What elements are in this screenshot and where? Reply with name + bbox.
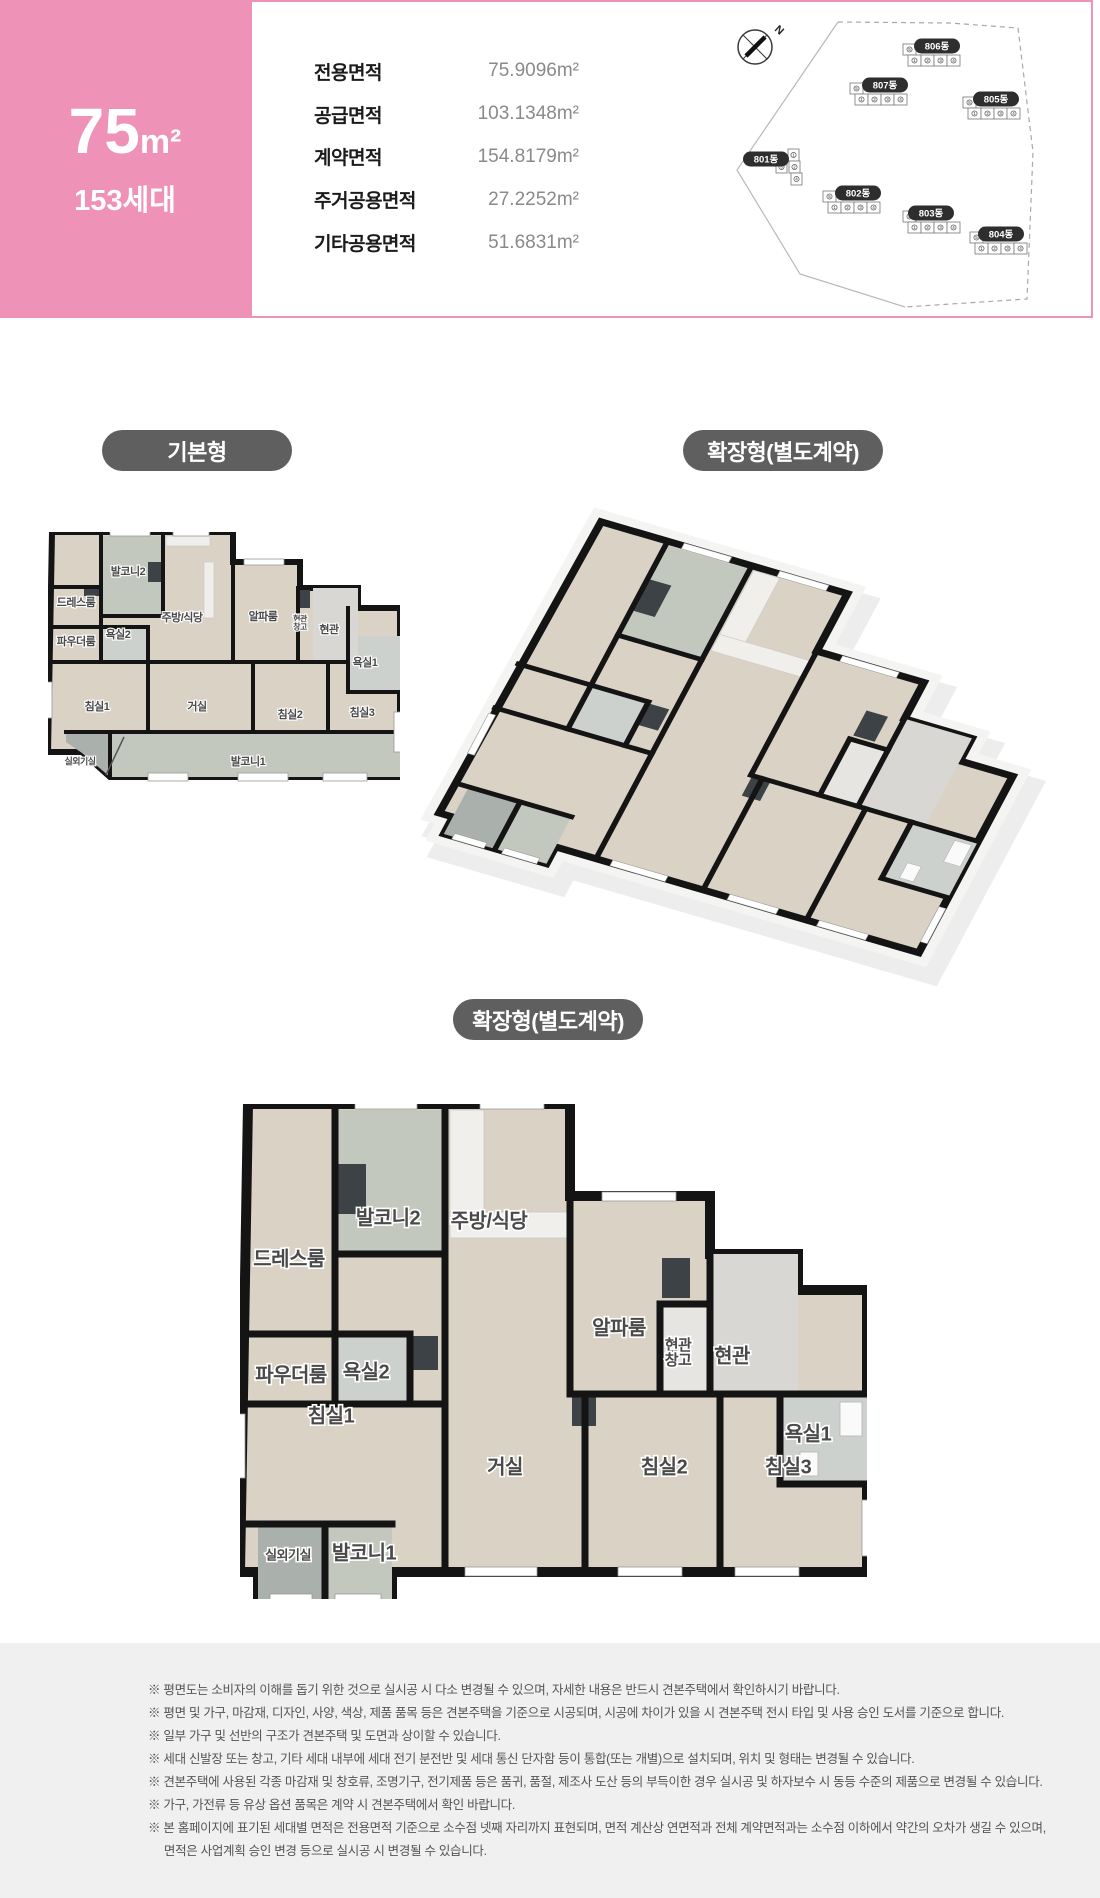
room-label: 드레스룸 <box>253 1247 325 1270</box>
room-label: 현관창고 <box>293 614 308 632</box>
room-label: 현관 <box>714 1344 751 1367</box>
room-label: 발코니2 <box>111 564 146 578</box>
type-households: 153세대 <box>74 177 176 219</box>
area-value: 154.8179m² <box>478 146 579 168</box>
area-row: 전용면적75.9096m² <box>314 50 579 93</box>
room-label: 침실3 <box>350 705 375 719</box>
room-label: 알파룸 <box>249 609 278 623</box>
room-label: 현관 <box>319 622 339 636</box>
area-label: 계약면적 <box>314 143 382 170</box>
floor-plan-extended: 발코니2주방/식당드레스룸파우더룸욕실2알파룸현관창고현관욕실1침실1거실침실2… <box>240 1104 867 1599</box>
room-label: 침실2 <box>278 707 303 721</box>
building-name: 801동 <box>754 155 779 166</box>
building-name: 806동 <box>925 42 950 53</box>
room-label: 욕실1 <box>785 1422 832 1445</box>
area-value: 27.2252m² <box>488 189 579 211</box>
room-label: 침실3 <box>765 1455 812 1478</box>
room-label: 현관창고 <box>665 1337 692 1369</box>
type-unit: m² <box>140 123 182 161</box>
compass-icon: N <box>738 23 786 64</box>
notice-box: ※ 평면도는 소비자의 이해를 돕기 위한 것으로 실시공 시 다소 변경될 수… <box>0 1643 1100 1898</box>
room-label: 침실1 <box>308 1404 355 1427</box>
room-label: 실외기실 <box>64 755 95 766</box>
room-label: 실외기실 <box>265 1547 311 1562</box>
area-row: 기타공용면적51.6831m² <box>314 221 579 264</box>
room-label: 파우더룸 <box>57 634 96 648</box>
room-label: 거실 <box>187 699 207 713</box>
room-label: 욕실2 <box>106 627 131 641</box>
room-label: 침실2 <box>641 1455 688 1478</box>
area-value: 75.9096m² <box>488 60 579 82</box>
site-plan: N 51234806동51234807동51234805동1234801동512… <box>590 2 1093 316</box>
building-name: 802동 <box>846 189 871 200</box>
notice-line: ※ 본 홈페이지에 표기된 세대별 면적은 전용면적 기준으로 소수점 넷째 자… <box>148 1817 1060 1840</box>
badge-extended-type-top: 확장형(별도계약) <box>683 430 883 471</box>
room-label: 드레스룸 <box>57 595 96 609</box>
notice-line: ※ 견본주택에 사용된 각종 마감재 및 창호류, 조명기구, 전기제품 등은 … <box>148 1771 1060 1794</box>
notice-line: ※ 일부 가구 및 선반의 구조가 견본주택 및 도면과 상이할 수 있습니다. <box>148 1725 1060 1748</box>
room-label: 주방/식당 <box>451 1209 529 1232</box>
notice-list: ※ 평면도는 소비자의 이해를 돕기 위한 것으로 실시공 시 다소 변경될 수… <box>148 1679 1060 1863</box>
notice-line: 면적은 사업계획 승인 변경 등으로 실시공 시 변경될 수 있습니다. <box>148 1840 1060 1863</box>
badge-basic-type: 기본형 <box>102 430 292 471</box>
building-name: 805동 <box>984 95 1009 106</box>
room-label: 알파룸 <box>592 1316 646 1339</box>
notice-line: ※ 평면 및 가구, 마감재, 디자인, 사양, 색상, 제품 품목 등은 견본… <box>148 1702 1060 1725</box>
room-label: 욕실1 <box>353 655 378 669</box>
floor-plan-basic: 발코니2드레스룸파우더룸욕실2주방/식당알파룸현관창고현관욕실1침실1거실침실2… <box>48 532 400 783</box>
area-value: 103.1348m² <box>478 103 579 125</box>
floor-plan-page: 75m² 153세대 전용면적75.9096m²공급면적103.1348m²계약… <box>0 0 1100 1898</box>
area-label: 전용면적 <box>314 58 382 85</box>
site-buildings: 51234806동51234807동51234805동1234801동51234… <box>743 39 1027 255</box>
room-label: 파우더룸 <box>255 1363 327 1386</box>
area-label: 공급면적 <box>314 101 382 128</box>
floor-plan-3d <box>410 495 1100 1015</box>
room-label: 발코니2 <box>356 1206 421 1229</box>
room-label: 발코니1 <box>231 754 266 768</box>
building-name: 807동 <box>873 81 898 92</box>
room-label: 욕실2 <box>343 1360 390 1383</box>
area-table: 전용면적75.9096m²공급면적103.1348m²계약면적154.8179m… <box>314 50 579 264</box>
area-label: 기타공용면적 <box>314 229 416 256</box>
area-row: 계약면적154.8179m² <box>314 136 579 179</box>
room-label: 거실 <box>487 1455 523 1478</box>
room-label: 주방/식당 <box>161 610 202 624</box>
type-size: 75m² <box>69 99 182 163</box>
notice-line: ※ 평면도는 소비자의 이해를 돕기 위한 것으로 실시공 시 다소 변경될 수… <box>148 1679 1060 1702</box>
type-box: 75m² 153세대 <box>0 0 250 318</box>
area-label: 주거공용면적 <box>314 186 416 213</box>
area-row: 공급면적103.1348m² <box>314 93 579 136</box>
building-name: 804동 <box>989 230 1014 241</box>
compass-north-label: N <box>772 23 786 37</box>
room-label: 발코니1 <box>332 1541 397 1564</box>
area-row: 주거공용면적27.2252m² <box>314 178 579 221</box>
notice-line: ※ 가구, 가전류 등 유상 옵션 품목은 계약 시 견본주택에서 확인 바랍니… <box>148 1794 1060 1817</box>
notice-line: ※ 세대 신발장 또는 창고, 기타 세대 내부에 세대 전기 분전반 및 세대… <box>148 1748 1060 1771</box>
area-value: 51.6831m² <box>488 232 579 254</box>
building-name: 803동 <box>919 209 944 220</box>
info-panel: 전용면적75.9096m²공급면적103.1348m²계약면적154.8179m… <box>250 0 1093 318</box>
room-label: 침실1 <box>85 699 110 713</box>
iso-plan-root <box>426 517 1083 984</box>
